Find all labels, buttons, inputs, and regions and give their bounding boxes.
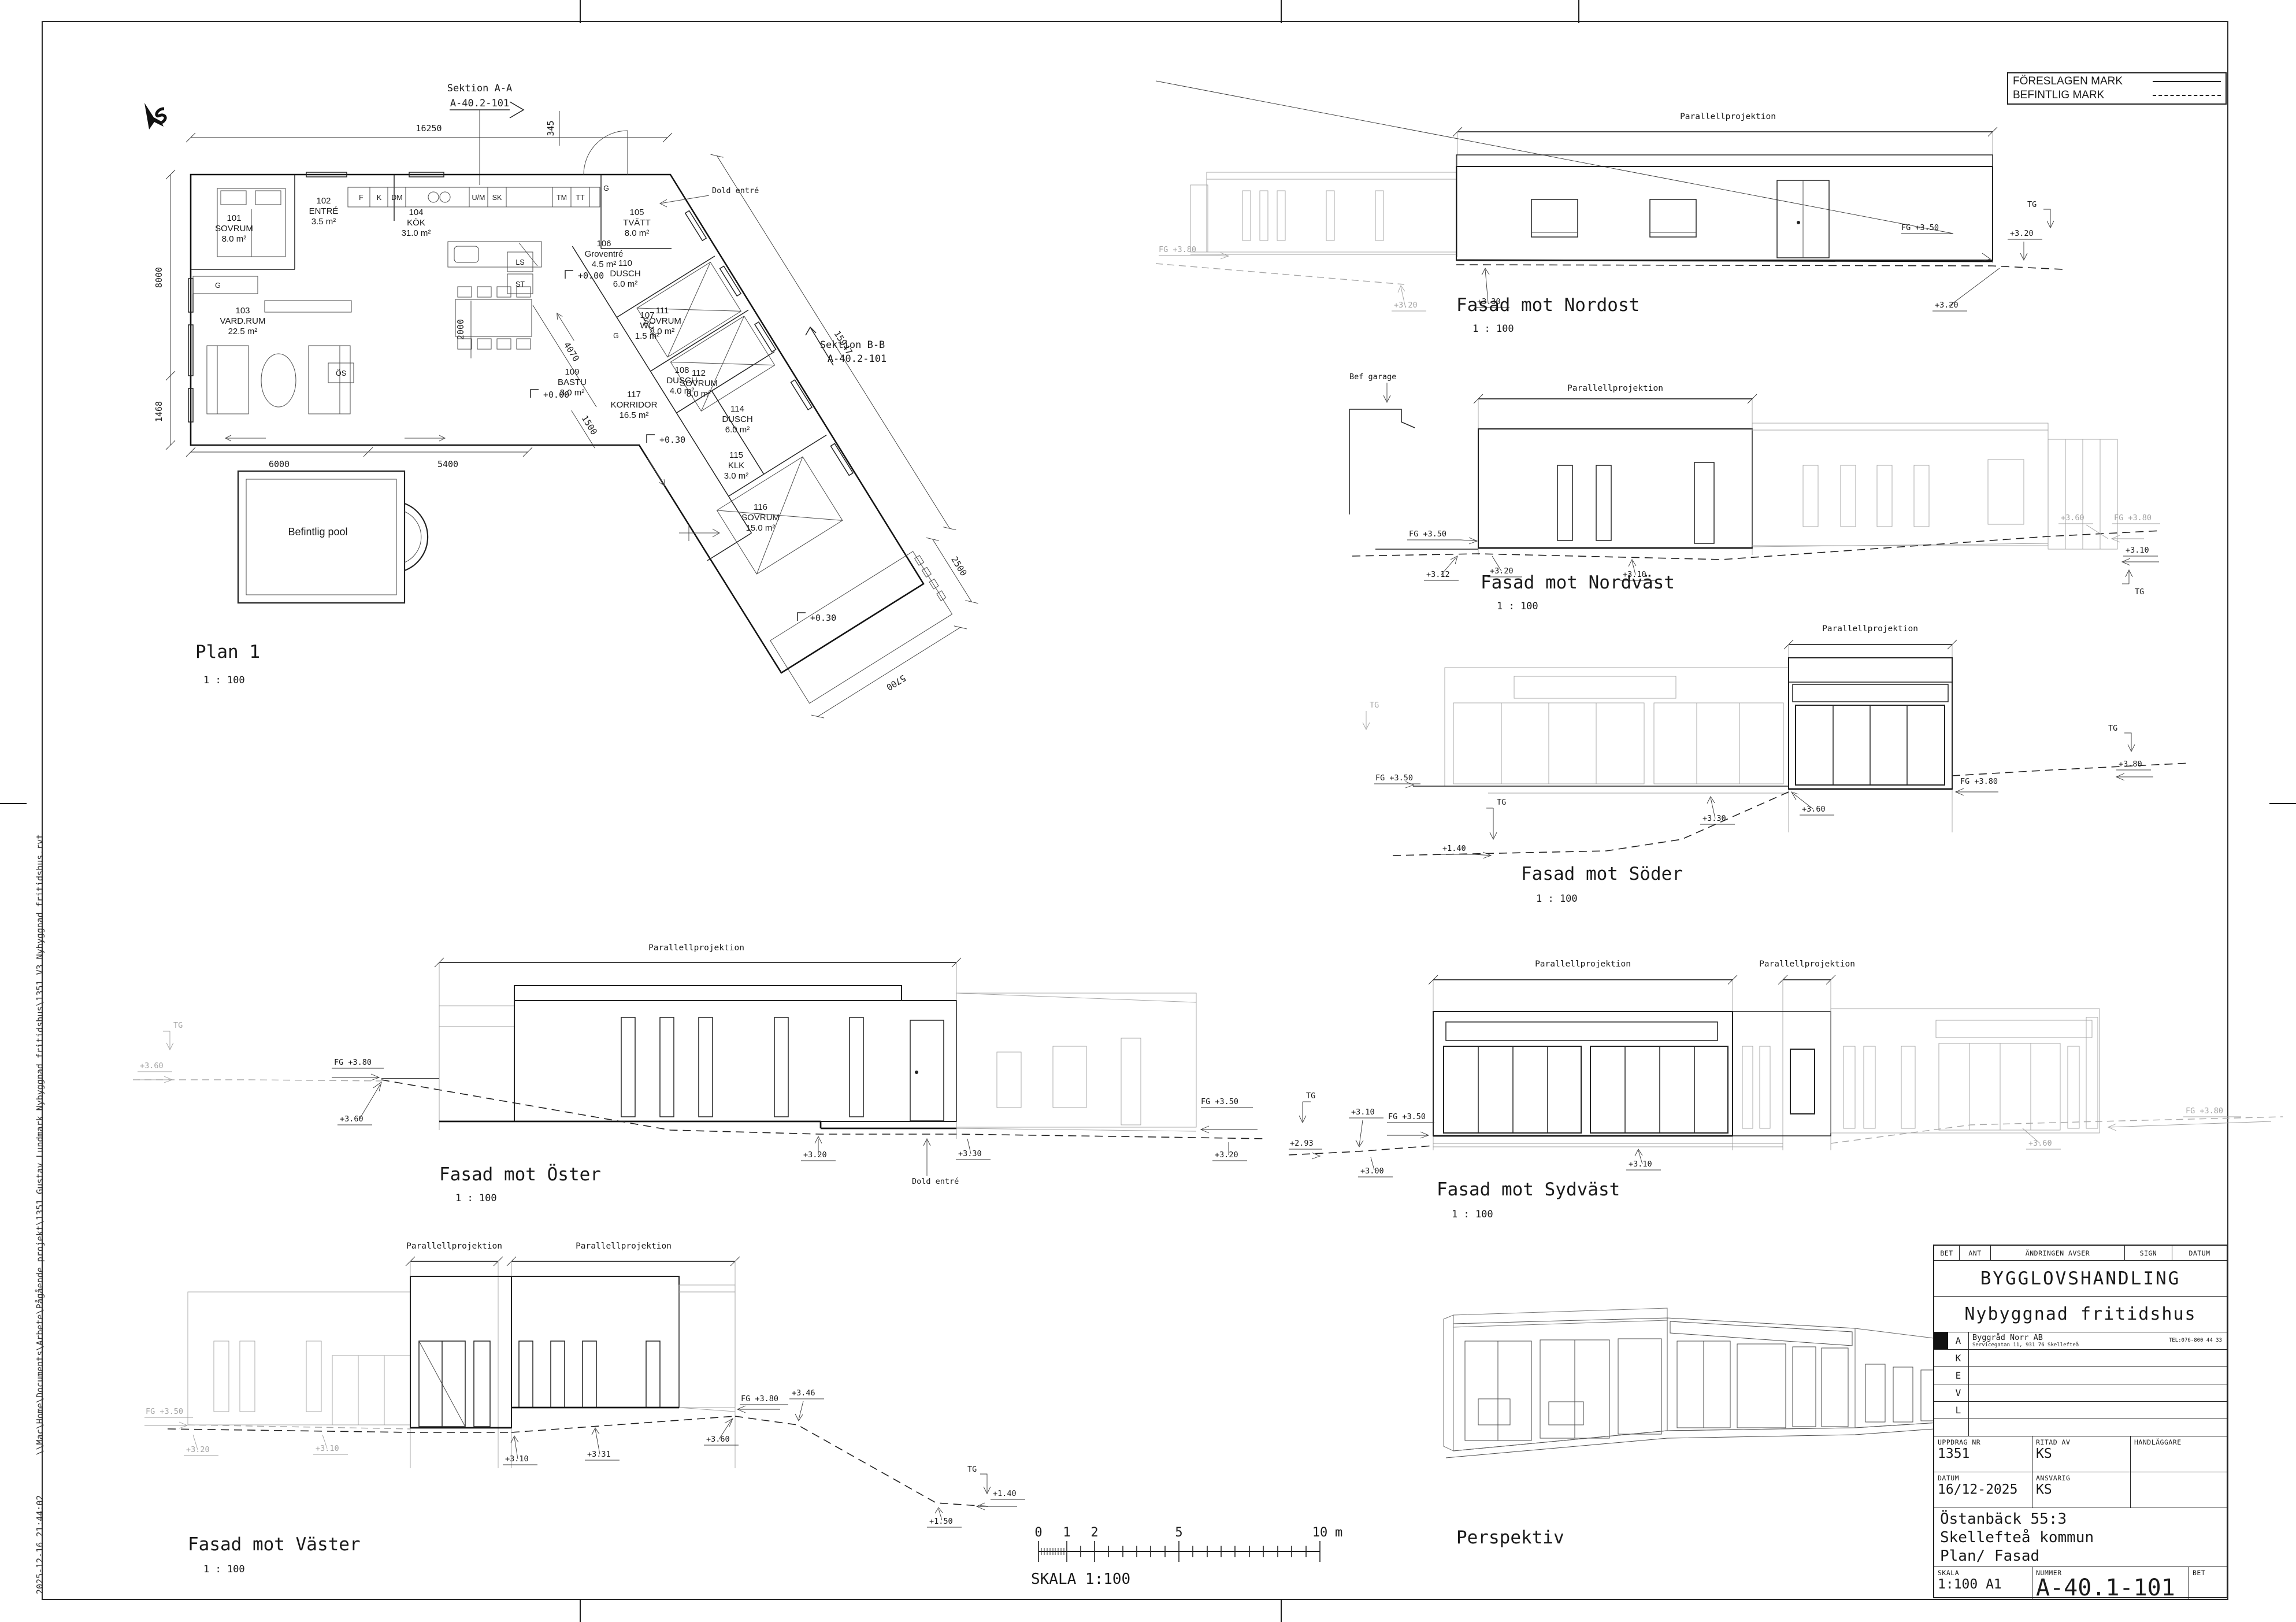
plan-furniture (193, 187, 600, 441)
svg-text:FG +3.50: FG +3.50 (1201, 1097, 1238, 1106)
svg-text:FG +3.80: FG +3.80 (1960, 777, 1998, 786)
plan-view: Sektion A-A A-40.2-101 16250 8000 1468 3… (133, 75, 1023, 746)
svg-text:1: 1 (1063, 1525, 1070, 1540)
svg-text:+1.40: +1.40 (993, 1489, 1017, 1498)
svg-text:110: 110 (618, 258, 632, 268)
svg-text:+3.60: +3.60 (1802, 805, 1826, 814)
fixture-label: ST (515, 280, 525, 288)
svg-text:KLK: KLK (728, 461, 744, 471)
svg-text:117: 117 (627, 390, 641, 399)
svg-text:6.0 m²: 6.0 m² (725, 425, 750, 435)
svg-text:FG +3.80: FG +3.80 (2114, 513, 2152, 523)
level-marks: TG +3.10 FG +3.50 +2.93 +3.00 +3.10 +3.6… (1289, 1091, 2271, 1177)
legend-proposed-label: FÖRESLAGEN MARK (2013, 75, 2123, 88)
svg-text:+3.60: +3.60 (2061, 513, 2084, 523)
svg-text:SOVRUM: SOVRUM (680, 379, 718, 388)
svg-text:KORRIDOR: KORRIDOR (611, 400, 658, 410)
svg-text:8.0 m²: 8.0 m² (222, 234, 247, 244)
svg-text:0: 0 (1034, 1525, 1042, 1540)
svg-text:3.5 m²: 3.5 m² (311, 217, 336, 227)
svg-text:DUSCH: DUSCH (610, 269, 640, 279)
svg-text:TG: TG (2027, 200, 2037, 209)
svg-text:2500: 2500 (949, 554, 969, 577)
svg-text:16.5 m²: 16.5 m² (620, 410, 649, 420)
svg-text:Groventré: Groventré (585, 249, 624, 259)
svg-text:FG +3.80: FG +3.80 (334, 1058, 372, 1067)
svg-text:FG +3.50: FG +3.50 (146, 1407, 183, 1416)
projection-label: Parallellprojektion (1680, 112, 1776, 121)
svg-text:+0.00: +0.00 (578, 271, 604, 281)
fixture-label: SK (492, 194, 502, 202)
svg-text:115: 115 (729, 450, 743, 460)
svg-text:Sektion A-A: Sektion A-A (447, 83, 513, 94)
svg-text:+1.50: +1.50 (929, 1517, 953, 1526)
svg-text:345: 345 (546, 120, 556, 136)
svg-text:+3.31: +3.31 (587, 1450, 611, 1459)
svg-text:VARD.RUM: VARD.RUM (220, 316, 266, 326)
facade-nordost-view: Parallellprojektion FG +3.80 +3.20 +3.30… (1156, 81, 2063, 335)
svg-text:8.0 m²: 8.0 m² (650, 327, 675, 336)
object-line-3: Plan/ Fasad (1940, 1547, 2039, 1565)
dashed-line-sample (2153, 95, 2221, 96)
svg-text:FG +3.50: FG +3.50 (1388, 1112, 1426, 1121)
svg-text:114: 114 (730, 404, 744, 414)
facade-title: Fasad mot Nordost (1456, 295, 1640, 316)
svg-text:FG +3.50: FG +3.50 (1409, 529, 1446, 539)
svg-text:106: 106 (596, 239, 611, 249)
room-label: 114DUSCH6.0 m² (722, 404, 752, 435)
facade-scale: 1 : 100 (455, 1193, 497, 1204)
discipline-row-a: A Byggråd Norr AB Servicegatan 11, 931 7… (1934, 1332, 2227, 1350)
fixture-label: G (215, 282, 221, 290)
drawing-number: A-40.1-101 (2036, 1577, 2175, 1599)
facade-title: Fasad mot Öster (439, 1164, 601, 1185)
svg-text:TG: TG (1370, 701, 1379, 710)
svg-text:TG: TG (173, 1021, 183, 1030)
file-path: \\Mac\Home\Documents\Arbete\Pågående pro… (35, 834, 45, 1456)
fixture-label: LS (515, 258, 524, 266)
facade-soder-view: Parallellprojektion TG FG +3.50 TG +1.40… (1358, 590, 2190, 913)
svg-text:112: 112 (692, 368, 706, 378)
svg-text:104: 104 (409, 208, 423, 217)
facade-title: Fasad mot Väster (188, 1534, 361, 1555)
facade-scale: 1 : 100 (203, 1564, 245, 1575)
bef-garage-label: Bef garage (1349, 372, 1396, 382)
fixture-label: G (603, 184, 609, 192)
svg-text:8000: 8000 (154, 267, 164, 288)
svg-text:5: 5 (1175, 1525, 1182, 1540)
ansvarig-value: KS (2036, 1482, 2052, 1497)
perspective-view: Perspektiv (1410, 1254, 1965, 1561)
fixture-label: TM (557, 194, 567, 202)
svg-text:+0.30: +0.30 (810, 613, 836, 623)
fields-row-1: UPPDRAG NR 1351 RITAD AV KS HANDLÄGGARE (1934, 1436, 2227, 1472)
svg-text:109: 109 (565, 367, 579, 377)
svg-text:6.0 m²: 6.0 m² (613, 279, 638, 289)
svg-text:+3.60: +3.60 (340, 1114, 363, 1124)
svg-text:TG: TG (1306, 1091, 1315, 1101)
fixture-label: G (613, 332, 619, 340)
svg-text:SOVRUM: SOVRUM (215, 224, 253, 234)
legend-proposed: FÖRESLAGEN MARK (2013, 75, 2221, 88)
scale-bar: 0 1 2 5 10 m SKALA 1:100 (1023, 1503, 1393, 1595)
plan-title: Plan 1 (195, 642, 260, 662)
svg-text:BASTU: BASTU (558, 377, 587, 387)
svg-text:FG +3.80: FG +3.80 (2186, 1106, 2223, 1116)
facade-scale: 1 : 100 (1536, 893, 1578, 905)
revision-header-row: BET ANT ÄNDRINGEN AVSER SIGN DATUM (1934, 1246, 2227, 1261)
svg-text:+0.30: +0.30 (659, 435, 685, 445)
fixture-label: U/M (472, 194, 485, 202)
dold-entre-label: Dold entré (912, 1177, 959, 1186)
svg-text:+3.80: +3.80 (2119, 760, 2142, 769)
level-marks: TG +3.60 FG +3.80 +3.60 +3.20 Dold entré… (138, 1021, 1258, 1186)
fixture-label: TT (576, 194, 585, 202)
building-outline (191, 175, 923, 673)
svg-text:FG +3.80: FG +3.80 (741, 1394, 778, 1403)
facade-sydvast-view: Parallellprojektion Parallellprojektion … (1289, 931, 2283, 1231)
room-label: 116SOVRUM15.0 m² (741, 502, 780, 533)
svg-text:2000: 2000 (455, 319, 466, 340)
svg-text:15.0 m²: 15.0 m² (746, 523, 776, 533)
fixture-label: K (377, 194, 382, 202)
uppdrag-value: 1351 (1938, 1446, 1969, 1461)
project-name: Nybyggnad fritidshus (1964, 1304, 2196, 1324)
svg-text:TG: TG (1497, 798, 1506, 807)
room-label: 104KÖK31.0 m² (402, 208, 431, 238)
svg-text:ENTRÉ: ENTRÉ (309, 206, 339, 216)
svg-text:31.0 m²: 31.0 m² (402, 228, 431, 238)
company-tel: TEL:076-800 44 33 (2169, 1338, 2222, 1343)
svg-text:105: 105 (629, 208, 644, 217)
facade-title: Fasad mot Söder (1521, 864, 1683, 884)
svg-text:+3.46: +3.46 (792, 1388, 815, 1398)
svg-text:TG: TG (967, 1465, 977, 1474)
fixture-label: ÖS (336, 369, 346, 377)
svg-text:+3.10: +3.10 (1629, 1160, 1652, 1169)
svg-text:10: 10 (1312, 1525, 1328, 1540)
projection-label: Parallellprojektion (1535, 960, 1631, 969)
ritad-value: KS (2036, 1446, 2052, 1461)
svg-text:+0.00: +0.00 (543, 390, 569, 400)
svg-text:8.0 m²: 8.0 m² (625, 228, 650, 238)
object-line-1: Östanbäck 55:3 (1940, 1510, 2067, 1528)
svg-text:3.0 m²: 3.0 m² (724, 471, 749, 481)
file-path-sidebar: 2025-12-16 21:44:02 \\Mac\Home\Documents… (35, 799, 45, 1594)
svg-text:4.5 m²: 4.5 m² (592, 260, 617, 269)
projection-label: Parallellprojektion (406, 1242, 502, 1251)
register-mark (580, 0, 581, 23)
svg-text:+3.10: +3.10 (1351, 1108, 1375, 1117)
svg-text:KÖK: KÖK (407, 217, 425, 228)
title-block: BET ANT ÄNDRINGEN AVSER SIGN DATUM BYGGL… (1933, 1245, 2228, 1598)
active-discipline-marker (1934, 1332, 1948, 1349)
projection-label-2: Parallellprojektion (1759, 960, 1855, 969)
perspective-title: Perspektiv (1456, 1527, 1564, 1548)
svg-text:Sektion B-B: Sektion B-B (820, 339, 885, 351)
svg-text:+1.40: +1.40 (1442, 844, 1466, 853)
projection-label: Parallellprojektion (1567, 384, 1663, 393)
register-mark (1281, 0, 1282, 23)
fixture-label: DM (391, 194, 402, 202)
plan-scale: 1 : 100 (203, 675, 245, 686)
facade-oster-view: Parallellprojektion TG +3.60 FG +3.80 +3… (133, 931, 1266, 1208)
svg-text:5400: 5400 (437, 459, 458, 469)
svg-text:FG +3.80: FG +3.80 (1159, 245, 1196, 254)
svg-text:+3.10: +3.10 (2126, 546, 2149, 555)
svg-text:5700: 5700 (884, 673, 907, 693)
plan-dimensions: 16250 8000 1468 345 6000 5400 2000 (154, 111, 672, 469)
svg-text:+3.10: +3.10 (505, 1454, 529, 1464)
object-block: Östanbäck 55:3 Skellefteå kommun Plan/ F… (1934, 1508, 2227, 1567)
svg-text:+2.93: +2.93 (1290, 1139, 1314, 1148)
room-label: 102ENTRÉ3.5 m² (309, 196, 339, 227)
level-marks: FG +3.50 +3.20 +3.10 +3.10 +3.31 +3.60 F… (144, 1388, 1025, 1527)
projection-label: Parallellprojektion (1822, 624, 1918, 634)
svg-text:+3.20: +3.20 (1394, 301, 1418, 310)
svg-text:DUSCH: DUSCH (722, 414, 752, 424)
svg-text:A-40.2-101: A-40.2-101 (450, 98, 509, 109)
room-label: 106Groventré4.5 m² (585, 239, 624, 269)
legend-existing: BEFINTLIG MARK (2013, 89, 2221, 102)
document-type: BYGGLOVSHANDLING (1980, 1268, 2181, 1289)
level-marks: FG +3.80 +3.20 +3.30 FG +3.50 +3.20 +3.2… (1156, 81, 2054, 311)
fields-row-2: DATUM 16/12-2025 ANSVARIG KS (1934, 1472, 2227, 1508)
svg-text:2: 2 (1090, 1525, 1098, 1540)
fixture-label: F (359, 194, 363, 202)
svg-text:+3.20: +3.20 (803, 1150, 827, 1160)
svg-text:FG +3.50: FG +3.50 (1375, 773, 1413, 783)
dold-entre-callout: Dold entré (660, 186, 759, 207)
svg-text:+3.60: +3.60 (706, 1435, 730, 1444)
svg-text:Dold entré: Dold entré (712, 186, 759, 195)
svg-text:101: 101 (227, 213, 241, 223)
svg-text:SOVRUM: SOVRUM (643, 316, 681, 326)
svg-text:116: 116 (754, 502, 767, 512)
section-a-mark: Sektion A-A A-40.2-101 (447, 83, 524, 185)
pool: Befintlig pool (238, 471, 428, 603)
drawing-sheet: Sektion A-A A-40.2-101 16250 8000 1468 3… (0, 0, 2296, 1622)
svg-text:TG: TG (2108, 724, 2117, 733)
svg-text:+3.20: +3.20 (2010, 229, 2034, 238)
svg-text:8.0 m²: 8.0 m² (687, 389, 711, 399)
svg-text:TVÄTT: TVÄTT (623, 218, 651, 228)
svg-text:1500: 1500 (580, 413, 599, 436)
facade-scale: 1 : 100 (1452, 1209, 1493, 1220)
section-b-mark: Sektion B-B A-40.2-101 (806, 327, 886, 365)
svg-text:+3.10: +3.10 (316, 1444, 339, 1453)
svg-text:+3.20: +3.20 (1215, 1150, 1238, 1160)
room-label: 103VARD.RUM22.5 m² (220, 306, 266, 336)
register-mark (0, 803, 27, 804)
room-label: 115KLK3.0 m² (724, 450, 749, 481)
facade-nordvast-view: Bef garage Parallellprojektion FG +3.50 … (1318, 341, 2161, 619)
svg-text:+3.60: +3.60 (140, 1061, 164, 1071)
solid-line-sample (2153, 81, 2221, 82)
register-mark (2269, 803, 2296, 804)
svg-text:4070: 4070 (562, 340, 581, 363)
svg-text:103: 103 (235, 306, 250, 316)
svg-text:111: 111 (656, 306, 669, 316)
facade-title: Fasad mot Sydväst (1437, 1179, 1620, 1200)
svg-text:102: 102 (316, 196, 331, 206)
datum-value: 16/12-2025 (1938, 1482, 2017, 1497)
svg-text:A-40.2-101: A-40.2-101 (828, 353, 886, 365)
projection-label: Parallellprojektion (648, 943, 744, 953)
svg-text:Befintlig pool: Befintlig pool (288, 526, 347, 538)
room-label: 117KORRIDOR16.5 m² (611, 390, 658, 420)
mark-legend: FÖRESLAGEN MARK BEFINTLIG MARK (2007, 72, 2227, 105)
number-row: SKALA 1:100 A1 NUMMER A-40.1-101 BET (1934, 1567, 2227, 1599)
projection-label-2: Parallellprojektion (576, 1242, 672, 1251)
legend-existing-label: BEFINTLIG MARK (2013, 89, 2104, 102)
room-label: 101SOVRUM8.0 m² (215, 213, 253, 244)
svg-text:+3.12: +3.12 (1426, 570, 1450, 579)
terrace-deck (770, 551, 952, 703)
facade-scale: 1 : 100 (1472, 323, 1514, 335)
svg-text:m: m (1335, 1525, 1342, 1540)
svg-text:16250: 16250 (416, 123, 442, 134)
svg-text:+3.20: +3.20 (186, 1445, 210, 1454)
svg-text:+3.00: +3.00 (1360, 1166, 1384, 1176)
object-line-2: Skellefteå kommun (1940, 1528, 2094, 1547)
scale-bar-label: SKALA 1:100 (1031, 1571, 1130, 1588)
svg-text:SOVRUM: SOVRUM (741, 513, 780, 523)
svg-text:6000: 6000 (269, 459, 290, 469)
svg-text:1468: 1468 (154, 401, 164, 422)
svg-text:108: 108 (674, 365, 689, 375)
plan-levels: +0.00 +0.00 +0.30 +0.30 (531, 271, 836, 623)
svg-text:22.5 m²: 22.5 m² (228, 327, 258, 336)
room-label: 105TVÄTT8.0 m² (623, 208, 651, 238)
register-mark (1578, 0, 1579, 23)
plot-timestamp: 2025-12-16 21:44:02 (35, 1495, 45, 1594)
level-marks: TG FG +3.50 TG +1.40 +3.30 +3.60 FG +3.8… (1363, 701, 2153, 858)
plan-wing-group: 15947 2500 5700 4070 1500 (495, 145, 1018, 757)
svg-text:+3.60: +3.60 (2028, 1139, 2052, 1148)
skala-value: 1:100 A1 (1938, 1577, 2002, 1592)
room-labels: 101SOVRUM8.0 m² 102ENTRÉ3.5 m² 103VARD.R… (215, 196, 780, 533)
